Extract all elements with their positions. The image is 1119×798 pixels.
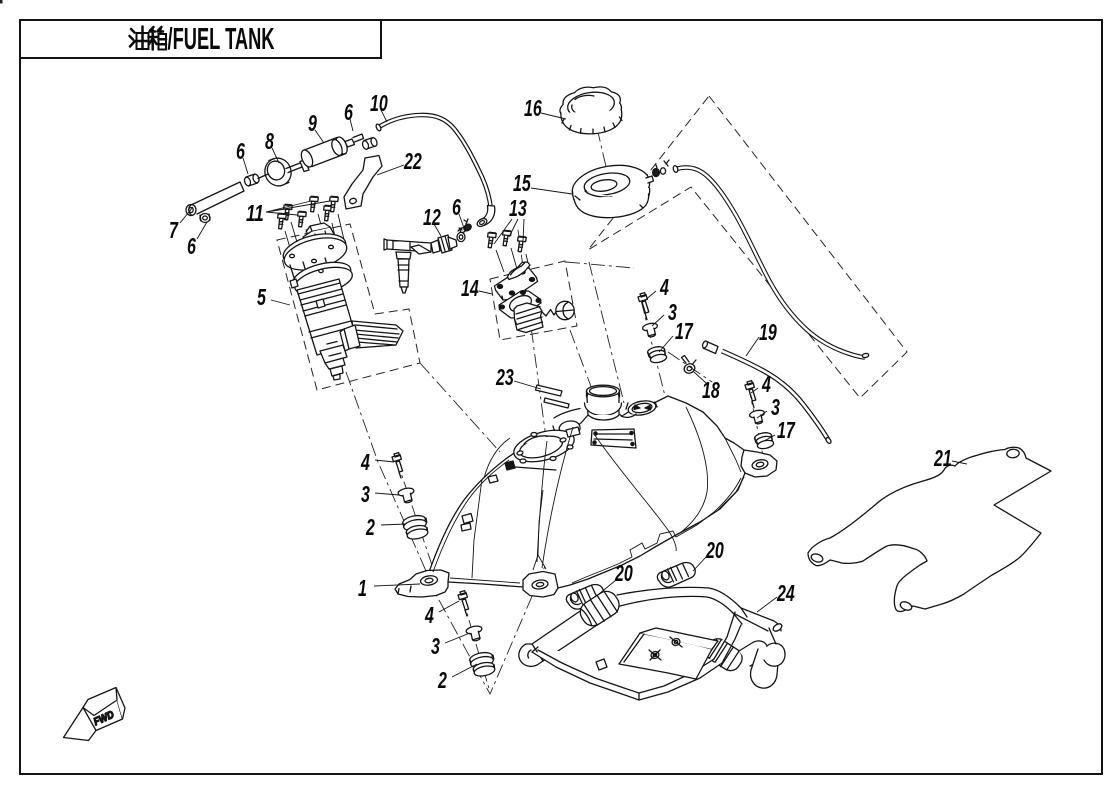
svg-text:20: 20 — [614, 560, 633, 586]
svg-text:1: 1 — [358, 575, 367, 601]
svg-text:11: 11 — [246, 200, 264, 226]
svg-text:12: 12 — [423, 204, 441, 230]
svg-text:3: 3 — [431, 633, 440, 659]
svg-text:15: 15 — [513, 170, 532, 196]
svg-text:9: 9 — [308, 110, 317, 136]
svg-text:22: 22 — [403, 148, 422, 174]
svg-text:3: 3 — [361, 481, 370, 507]
svg-text:10: 10 — [370, 90, 388, 116]
svg-text:/FUEL TANK: /FUEL TANK — [168, 21, 275, 56]
svg-text:18: 18 — [702, 377, 720, 403]
svg-text:6: 6 — [236, 138, 245, 164]
svg-text:20: 20 — [705, 537, 724, 563]
svg-text:6: 6 — [344, 99, 353, 125]
svg-text:19: 19 — [759, 319, 777, 345]
svg-text:6: 6 — [187, 233, 196, 259]
svg-text:4: 4 — [659, 274, 669, 300]
svg-text:6: 6 — [452, 194, 461, 220]
svg-text:16: 16 — [524, 95, 542, 121]
svg-text:14: 14 — [461, 275, 479, 301]
svg-text:8: 8 — [265, 128, 274, 154]
svg-text:4: 4 — [424, 602, 434, 628]
svg-text:7: 7 — [169, 217, 179, 243]
svg-text:4: 4 — [761, 371, 771, 397]
svg-text:17: 17 — [777, 417, 796, 443]
svg-text:4: 4 — [360, 449, 370, 475]
svg-text:17: 17 — [675, 318, 694, 344]
svg-text:24: 24 — [776, 580, 795, 606]
svg-text:2: 2 — [437, 667, 447, 693]
svg-text:2: 2 — [365, 514, 375, 540]
svg-text:13: 13 — [509, 195, 527, 221]
svg-text:5: 5 — [257, 284, 267, 310]
svg-text:21: 21 — [933, 445, 951, 471]
svg-text:23: 23 — [495, 364, 514, 390]
